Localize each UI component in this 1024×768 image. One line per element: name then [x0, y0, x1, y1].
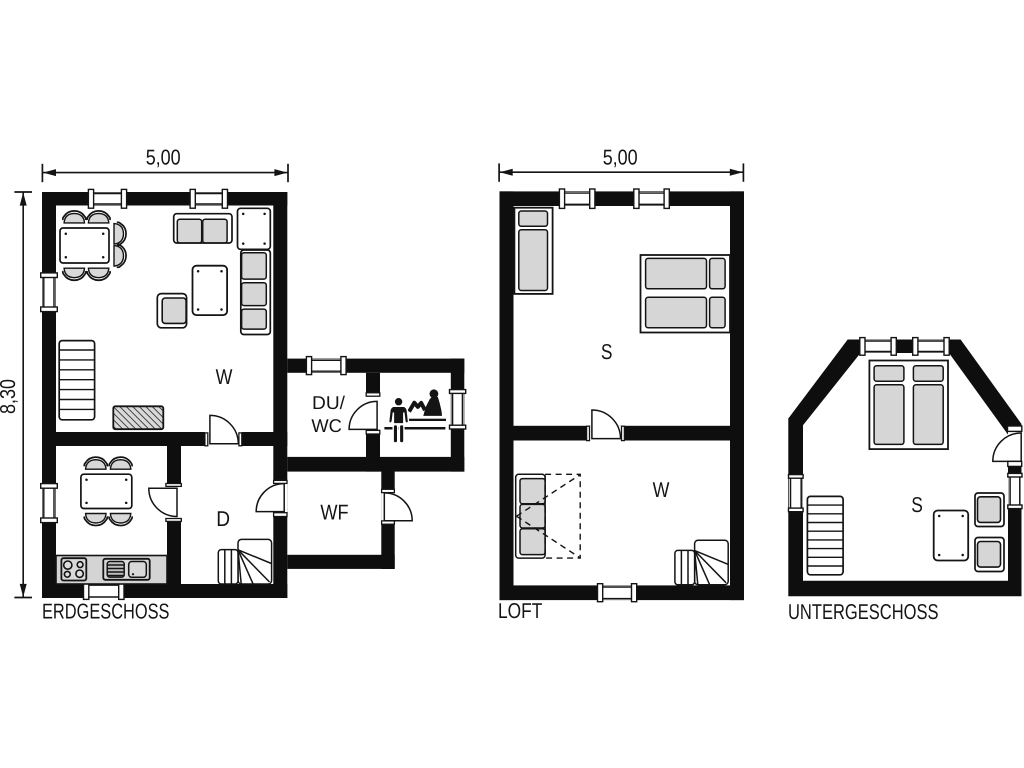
svg-text:DU/: DU/: [312, 392, 346, 413]
svg-text:W: W: [216, 365, 233, 389]
svg-text:WC: WC: [311, 415, 342, 436]
svg-text:5,00: 5,00: [146, 145, 181, 169]
svg-text:S: S: [911, 493, 923, 517]
svg-text:ERDGESCHOSS: ERDGESCHOSS: [42, 599, 170, 623]
svg-text:UNTERGESCHOSS: UNTERGESCHOSS: [788, 600, 939, 624]
svg-text:8,30: 8,30: [0, 379, 20, 414]
svg-text:D: D: [216, 507, 230, 531]
svg-text:W: W: [653, 478, 670, 502]
svg-text:5,00: 5,00: [603, 145, 638, 169]
svg-text:S: S: [601, 340, 613, 364]
svg-text:LOFT: LOFT: [498, 599, 542, 623]
svg-text:WF: WF: [320, 501, 348, 525]
